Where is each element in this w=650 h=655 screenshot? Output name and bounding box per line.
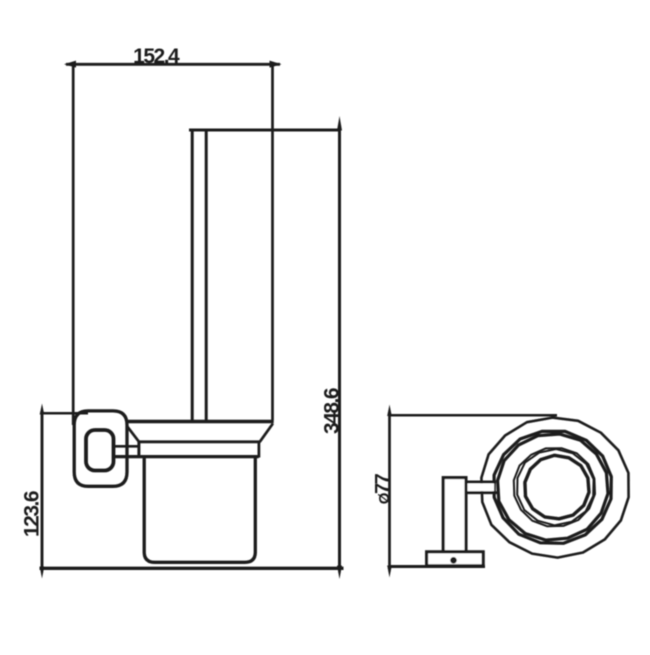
svg-text:123.6: 123.6	[21, 491, 44, 537]
svg-text:348.6: 348.6	[321, 388, 344, 434]
svg-text:152.4: 152.4	[133, 45, 180, 68]
svg-text:Ø77: Ø77	[372, 473, 394, 504]
